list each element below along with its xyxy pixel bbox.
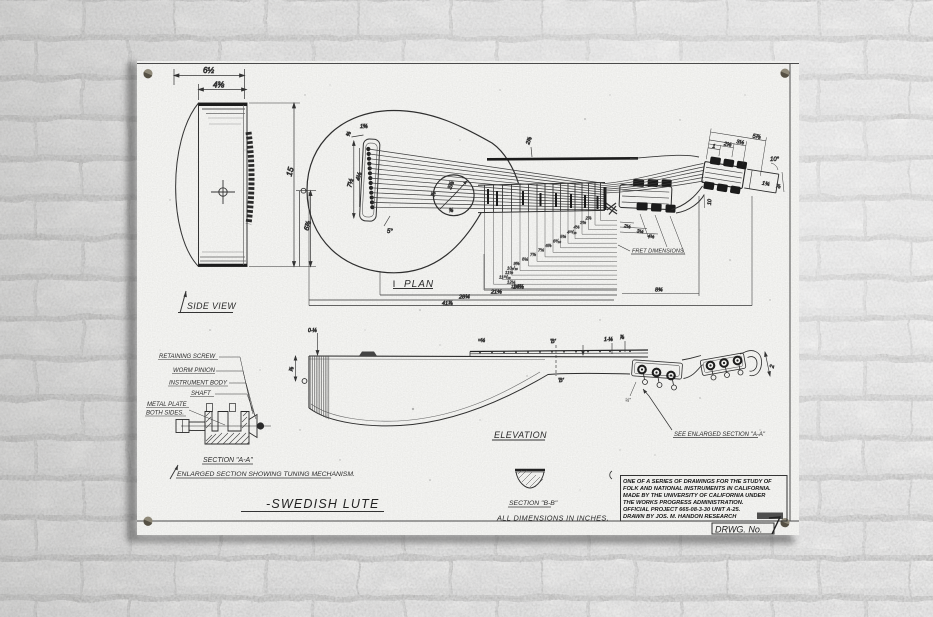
- svg-text:METAL PLATE: METAL PLATE: [147, 402, 188, 408]
- svg-text:SECTION "A-A": SECTION "A-A": [203, 457, 253, 464]
- svg-text:0-⅛: 0-⅛: [308, 328, 317, 334]
- svg-text:SIDE VIEW: SIDE VIEW: [187, 301, 236, 311]
- svg-text:ALL DIMENSIONS IN INCHES.: ALL DIMENSIONS IN INCHES.: [496, 514, 609, 523]
- svg-text:8¼: 8¼: [522, 257, 528, 262]
- svg-text:FRET DIMENSIONS: FRET DIMENSIONS: [632, 249, 684, 255]
- svg-text:3⅛: 3⅛: [736, 139, 745, 146]
- svg-text:7⅞: 7⅞: [530, 252, 536, 257]
- svg-text:28¼: 28¼: [458, 295, 470, 301]
- svg-text:21⅜: 21⅜: [490, 290, 502, 296]
- svg-text:14⅝: 14⅝: [513, 284, 524, 290]
- svg-text:10°: 10°: [770, 157, 780, 163]
- svg-text:6⅞: 6⅞: [546, 243, 552, 248]
- svg-text:ENLARGED SECTION SHOWING TUNIN: ENLARGED SECTION SHOWING TUNING MECHANIS…: [177, 471, 355, 478]
- svg-text:5°: 5°: [387, 229, 393, 235]
- svg-text:'B': 'B': [558, 378, 565, 384]
- svg-text:DRWG. No.: DRWG. No.: [715, 525, 762, 535]
- svg-text:1-⅛: 1-⅛: [604, 337, 613, 343]
- svg-text:SHAFT: SHAFT: [191, 391, 212, 397]
- svg-text:¼": ¼": [625, 398, 631, 404]
- svg-text:3¼: 3¼: [636, 228, 643, 235]
- svg-text:MADE BY THE UNIVERSITY OF CALI: MADE BY THE UNIVERSITY OF CALIFORNIA UND…: [623, 493, 766, 499]
- svg-text:SEE ENLARGED SECTION "A-A": SEE ENLARGED SECTION "A-A": [674, 432, 766, 438]
- svg-text:ELEVATION: ELEVATION: [494, 430, 547, 440]
- svg-text:4⅜: 4⅜: [213, 81, 224, 90]
- svg-text:FOLK AND NATIONAL INSTRUMENTS: FOLK AND NATIONAL INSTRUMENTS IN CALIFOR…: [623, 486, 771, 492]
- svg-text:OFFICIAL PROJECT 665-08-3-30 U: OFFICIAL PROJECT 665-08-3-30 UNIT A-25.: [623, 507, 741, 513]
- svg-text:THE WORKS PROGRESS ADMINISTRAT: THE WORKS PROGRESS ADMINISTRATION.: [623, 500, 744, 506]
- svg-text:6³/₁₆: 6³/₁₆: [553, 238, 561, 243]
- svg-text:'B': 'B': [550, 339, 557, 345]
- svg-text:3⅜: 3⅜: [580, 220, 586, 225]
- svg-text:41⅞: 41⅞: [442, 301, 453, 307]
- svg-text:DRAWN BY JOS. M. HANDON RESEAR: DRAWN BY JOS. M. HANDON RESEARCH: [623, 514, 737, 520]
- svg-text:4⅛: 4⅛: [647, 233, 654, 240]
- svg-text:1⅝: 1⅝: [360, 124, 368, 130]
- svg-text:SECTION "B-B": SECTION "B-B": [509, 500, 558, 507]
- svg-text:2⅛: 2⅛: [622, 223, 630, 230]
- svg-text:4¹³/₁₆: 4¹³/₁₆: [567, 229, 577, 234]
- svg-text:=½: =½: [478, 337, 486, 344]
- svg-text:RETAINING SCREW: RETAINING SCREW: [159, 354, 217, 360]
- svg-text:INSTRUMENT BODY: INSTRUMENT BODY: [169, 381, 228, 387]
- svg-text:8¾: 8¾: [655, 288, 663, 294]
- svg-text:-SWEDISH LUTE: -SWEDISH LUTE: [266, 497, 380, 511]
- svg-text:WORM PINION: WORM PINION: [173, 368, 216, 374]
- svg-text:BOTH SIDES.: BOTH SIDES.: [146, 411, 184, 417]
- svg-text:7⅛: 7⅛: [538, 247, 544, 252]
- svg-text:ONE OF A SERIES OF DRAWINGS FO: ONE OF A SERIES OF DRAWINGS FOR THE STUD…: [623, 479, 772, 485]
- svg-text:6½: 6½: [203, 66, 214, 75]
- svg-text:1¾: 1¾: [761, 181, 770, 188]
